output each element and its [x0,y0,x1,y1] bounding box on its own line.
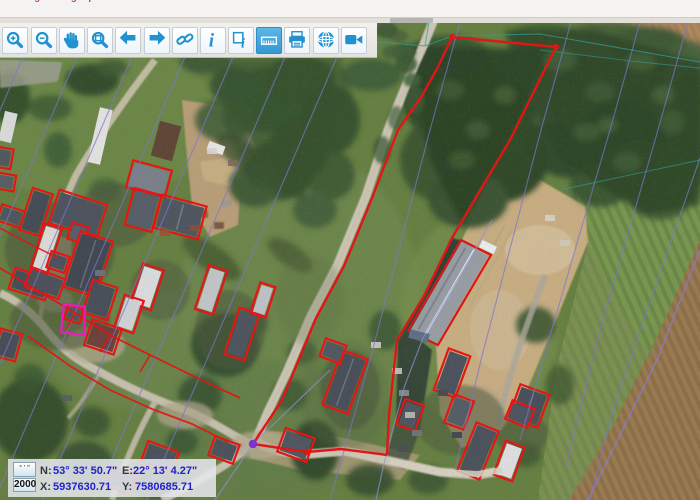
svg-text:i: i [209,31,215,51]
svg-text:i: i [241,35,245,50]
